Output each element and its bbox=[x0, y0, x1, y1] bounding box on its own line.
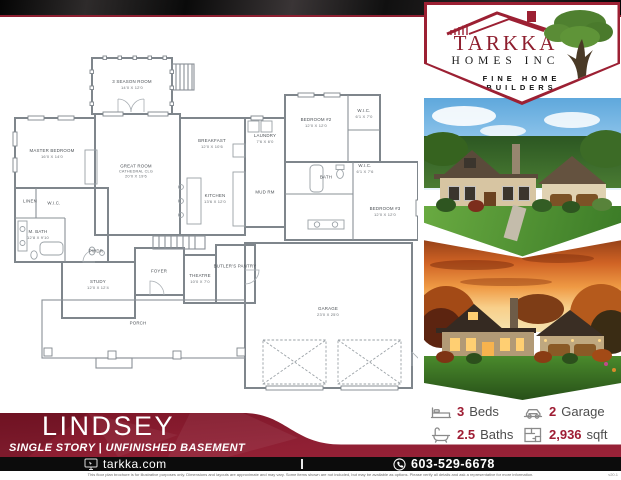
bath-icon bbox=[430, 426, 452, 443]
beds-value: 3 bbox=[457, 404, 464, 419]
brochure-page: 3 SEASON ROOM14'0 X 12'0MASTER BEDROOM16… bbox=[0, 0, 621, 480]
shrub bbox=[436, 351, 454, 363]
plan-subtitle: SINGLE STORY | UNFINISHED BASEMENT bbox=[9, 442, 245, 454]
window bbox=[464, 186, 476, 201]
cloud bbox=[430, 260, 514, 270]
sconce-light bbox=[544, 339, 547, 342]
car-icon bbox=[522, 404, 544, 420]
stat-baths: 2.5 Baths bbox=[430, 424, 522, 445]
flower bbox=[604, 362, 608, 366]
stat-garage: 2 Garage bbox=[522, 401, 620, 422]
footer-divider bbox=[301, 459, 303, 469]
room-label: PWDR bbox=[89, 248, 103, 254]
monitor-icon bbox=[84, 457, 98, 471]
phone-icon bbox=[393, 458, 406, 471]
room-label: MASTER BEDROOM16'0 X 14'0 bbox=[29, 148, 74, 159]
room-label: BEDROOM #312'0 X 12'0 bbox=[370, 206, 401, 217]
room-label: MUD RM bbox=[255, 189, 274, 195]
floorplan-icon bbox=[522, 426, 544, 444]
window bbox=[502, 186, 514, 201]
lawn bbox=[424, 356, 621, 400]
stat-beds: 3 Beds bbox=[430, 401, 522, 422]
room-label: PORCH bbox=[130, 320, 147, 326]
room-label: THEATRE10'0 X 7'0 bbox=[189, 273, 211, 284]
sqft-value: 2,936 bbox=[549, 427, 582, 442]
room-label: BREAKFAST12'0 X 10'6 bbox=[198, 138, 226, 149]
room-label: W.I.C.6'1 X 7'6 bbox=[356, 163, 373, 174]
version-text: v20.1 bbox=[608, 472, 618, 477]
shrub bbox=[532, 199, 552, 212]
room-label: M. BATH12'8 X 9'10 bbox=[27, 229, 49, 240]
garage-gable bbox=[536, 310, 604, 336]
sqft-label: sqft bbox=[587, 427, 608, 442]
website-group: tarkka.com bbox=[84, 457, 167, 471]
floor-plan: 3 SEASON ROOM14'0 X 12'0MASTER BEDROOM16… bbox=[8, 22, 418, 397]
stat-sqft: 2,936 sqft bbox=[522, 424, 620, 445]
room-label: 3 SEASON ROOM14'0 X 12'0 bbox=[112, 79, 151, 90]
sconce-light bbox=[598, 339, 601, 342]
beds-label: Beds bbox=[469, 404, 499, 419]
shrub bbox=[466, 353, 482, 364]
baths-value: 2.5 bbox=[457, 427, 475, 442]
lit-window bbox=[500, 338, 510, 351]
cloud bbox=[460, 278, 552, 286]
room-label: GARAGE23'0 X 25'0 bbox=[317, 306, 339, 317]
shrub bbox=[562, 201, 580, 213]
photo-house-day bbox=[424, 98, 621, 258]
shrub bbox=[562, 353, 578, 364]
lit-window bbox=[516, 338, 524, 351]
cloud bbox=[544, 112, 600, 128]
website-text: tarkka.com bbox=[103, 457, 167, 471]
lit-window bbox=[466, 338, 476, 351]
room-label: W.I.C. bbox=[47, 200, 60, 206]
shrub bbox=[436, 198, 456, 212]
stats-panel: 3 Beds 2 Garage 2.5 Baths 2,9 bbox=[430, 401, 620, 445]
room-label: GREAT ROOMCATHEDRAL CLG20'0 X 19'6 bbox=[119, 163, 153, 178]
floor-plan-drawing bbox=[8, 22, 418, 397]
gable-window bbox=[464, 158, 476, 168]
chimney bbox=[512, 144, 520, 174]
garage-label: Garage bbox=[561, 404, 604, 419]
garage-value: 2 bbox=[549, 404, 556, 419]
window bbox=[518, 186, 530, 201]
shrub bbox=[534, 351, 552, 363]
logo-panel: TARKKA HOMES INC FINE HOME BUILDERS bbox=[424, 2, 620, 105]
tree-icon bbox=[542, 7, 614, 87]
cloud bbox=[432, 106, 496, 126]
shrub bbox=[468, 200, 484, 212]
cloud bbox=[522, 254, 594, 263]
room-label: BUTLER'S PANTRY bbox=[214, 263, 257, 269]
bed-icon bbox=[430, 404, 452, 420]
room-label: KITCHEN13'6 X 12'0 bbox=[204, 193, 226, 204]
room-label: LAUNDRY7'6 X 6'0 bbox=[254, 133, 276, 144]
flower bbox=[612, 368, 616, 372]
lit-window bbox=[450, 338, 460, 351]
lit-window bbox=[468, 312, 478, 320]
baths-label: Baths bbox=[480, 427, 513, 442]
room-label: W.I.C.6'1 X 7'0 bbox=[355, 108, 372, 119]
logo-panel-inner: TARKKA HOMES INC FINE HOME BUILDERS bbox=[427, 5, 618, 102]
chimney bbox=[510, 298, 518, 330]
room-label: FOYER bbox=[151, 268, 167, 274]
shrub bbox=[592, 349, 612, 362]
plan-name-title: LINDSEY bbox=[42, 411, 172, 442]
phone-number: 603-529-6678 bbox=[411, 457, 495, 471]
disclaimer-text: This floor plan brochure is for illustra… bbox=[0, 472, 621, 477]
room-label: BEDROOM #212'0 X 12'0 bbox=[301, 117, 332, 128]
room-label: STUDY12'0 X 12'4 bbox=[87, 279, 109, 290]
sconce-light bbox=[571, 339, 574, 342]
phone-group: 603-529-6678 bbox=[393, 457, 495, 471]
room-label: BATH bbox=[320, 174, 332, 180]
shrub bbox=[592, 198, 612, 211]
garage-gable bbox=[538, 156, 606, 184]
room-label: LINEN bbox=[23, 198, 37, 204]
